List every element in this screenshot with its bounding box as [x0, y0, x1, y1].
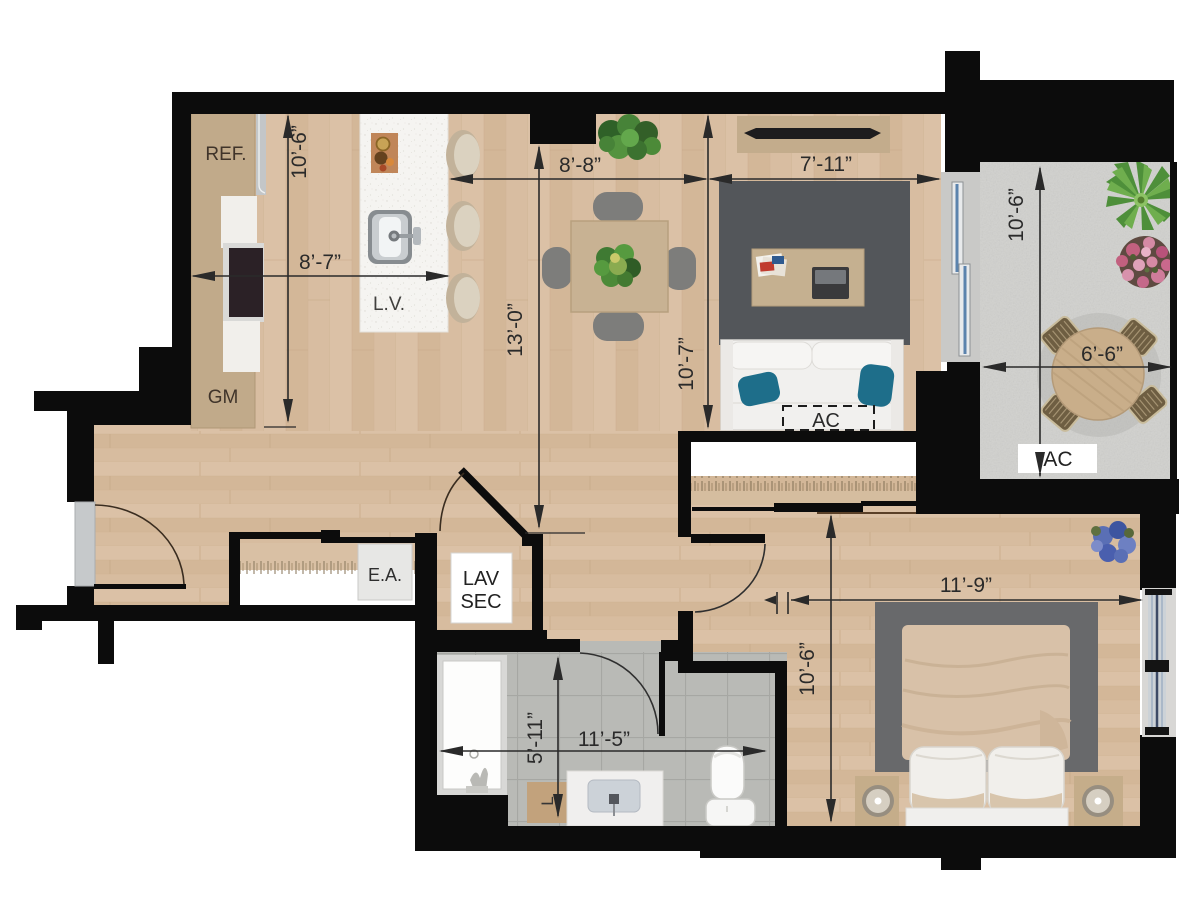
- svg-text:7’-11”: 7’-11”: [800, 153, 852, 176]
- svg-text:5’-11”: 5’-11”: [524, 712, 547, 764]
- svg-text:LAV: LAV: [463, 568, 500, 590]
- svg-text:11’-5”: 11’-5”: [578, 728, 630, 751]
- svg-text:8’-8”: 8’-8”: [559, 154, 601, 177]
- svg-text:SEC: SEC: [460, 591, 501, 613]
- svg-text:E.A.: E.A.: [368, 565, 402, 585]
- svg-text:10’-6”: 10’-6”: [288, 125, 311, 179]
- svg-text:AC: AC: [812, 410, 840, 432]
- svg-text:6’-6”: 6’-6”: [1081, 343, 1123, 366]
- svg-text:13’-0”: 13’-0”: [504, 303, 527, 357]
- svg-text:L.V.: L.V.: [373, 294, 405, 315]
- svg-text:8’-7”: 8’-7”: [299, 251, 341, 274]
- svg-text:10’-7”: 10’-7”: [675, 337, 698, 391]
- svg-text:AC: AC: [1043, 448, 1072, 471]
- svg-text:10’-6”: 10’-6”: [796, 642, 819, 696]
- svg-text:GM: GM: [208, 387, 239, 408]
- svg-text:11’-9”: 11’-9”: [940, 574, 992, 597]
- svg-text:10’-6”: 10’-6”: [1005, 188, 1028, 242]
- svg-text:REF.: REF.: [205, 144, 246, 165]
